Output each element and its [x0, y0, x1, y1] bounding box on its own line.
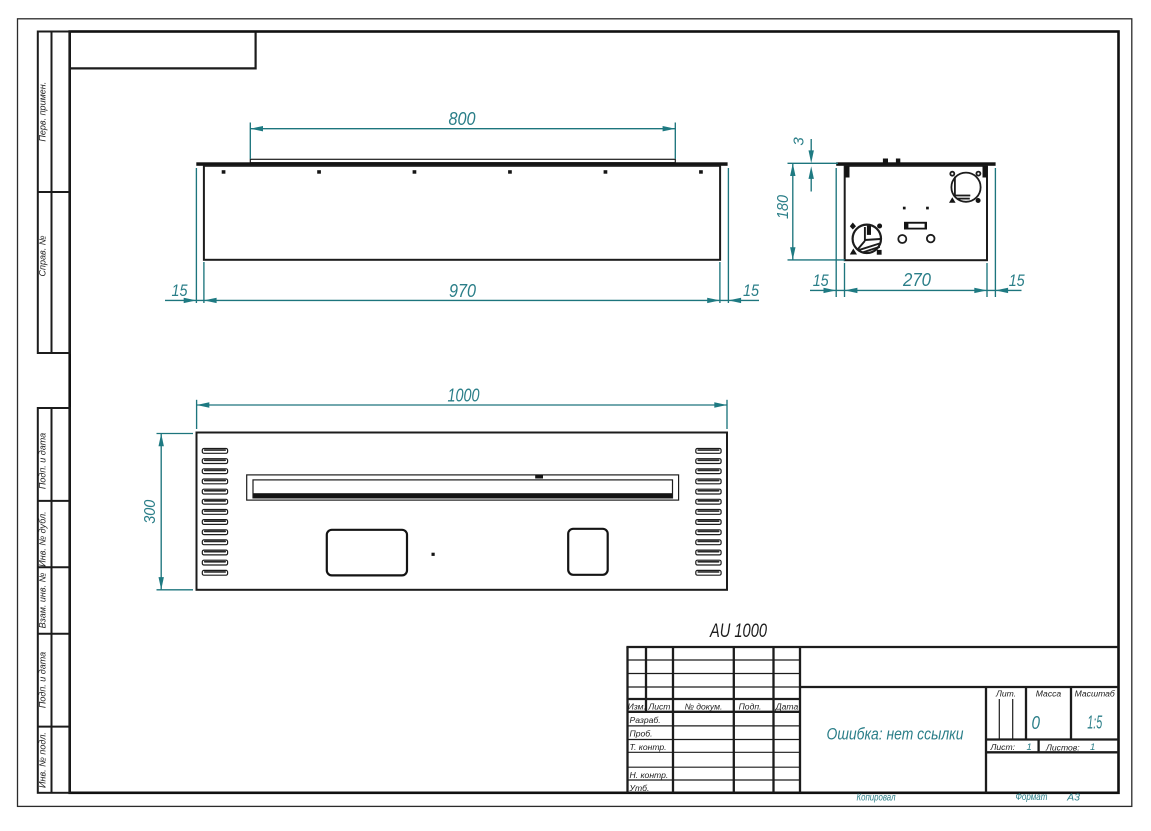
- svg-text:Подп. и дата: Подп. и дата: [38, 433, 48, 489]
- svg-text:Инв. № подл.: Инв. № подл.: [38, 732, 48, 788]
- svg-text:Масса: Масса: [1036, 689, 1062, 699]
- svg-text:Подп.: Подп.: [739, 701, 762, 711]
- svg-text:Лист: Лист: [647, 701, 670, 711]
- svg-text:Дата: Дата: [775, 701, 799, 711]
- svg-text:Формат: Формат: [1016, 791, 1048, 803]
- svg-text:Изм.: Изм.: [628, 701, 646, 711]
- svg-text:3: 3: [791, 137, 808, 146]
- svg-text:Н. контр.: Н. контр.: [630, 770, 669, 780]
- svg-text:Разраб.: Разраб.: [630, 715, 661, 725]
- svg-text:15: 15: [1009, 272, 1026, 290]
- svg-text:А3: А3: [1066, 792, 1080, 804]
- svg-text:Лит.: Лит.: [995, 689, 1016, 699]
- svg-text:AU 1000: AU 1000: [709, 620, 767, 642]
- svg-text:1: 1: [1027, 742, 1032, 753]
- svg-text:Взам. инв. №: Взам. инв. №: [38, 572, 48, 628]
- svg-text:15: 15: [172, 282, 189, 300]
- svg-text:Масштаб: Масштаб: [1075, 689, 1116, 699]
- svg-text:300: 300: [142, 499, 159, 523]
- svg-text:Т. контр.: Т. контр.: [630, 742, 667, 752]
- svg-text:0: 0: [1031, 713, 1040, 733]
- svg-text:Лист:: Лист:: [990, 742, 1016, 752]
- svg-text:Подп. и дата: Подп. и дата: [38, 652, 48, 708]
- svg-text:15: 15: [743, 282, 760, 300]
- svg-text:Копировал: Копировал: [857, 792, 896, 804]
- svg-text:15: 15: [813, 272, 830, 290]
- svg-text:№ докум.: № докум.: [685, 701, 723, 711]
- svg-text:Справ. №: Справ. №: [38, 235, 48, 276]
- svg-text:800: 800: [449, 109, 476, 129]
- svg-text:180: 180: [775, 195, 792, 219]
- svg-text:Ошибка: нет ссылки: Ошибка: нет ссылки: [827, 725, 964, 744]
- svg-text:Инв. № дубл.: Инв. № дубл.: [38, 511, 48, 566]
- svg-text:Перв. примен.: Перв. примен.: [38, 82, 48, 142]
- svg-text:970: 970: [449, 281, 476, 301]
- svg-text:1000: 1000: [448, 386, 480, 406]
- svg-text:Утб.: Утб.: [629, 783, 650, 793]
- svg-text:1:5: 1:5: [1087, 713, 1103, 733]
- svg-text:1: 1: [1090, 742, 1095, 753]
- svg-text:Листов:: Листов:: [1045, 742, 1080, 752]
- svg-text:270: 270: [902, 270, 931, 290]
- svg-text:Проб.: Проб.: [630, 729, 653, 739]
